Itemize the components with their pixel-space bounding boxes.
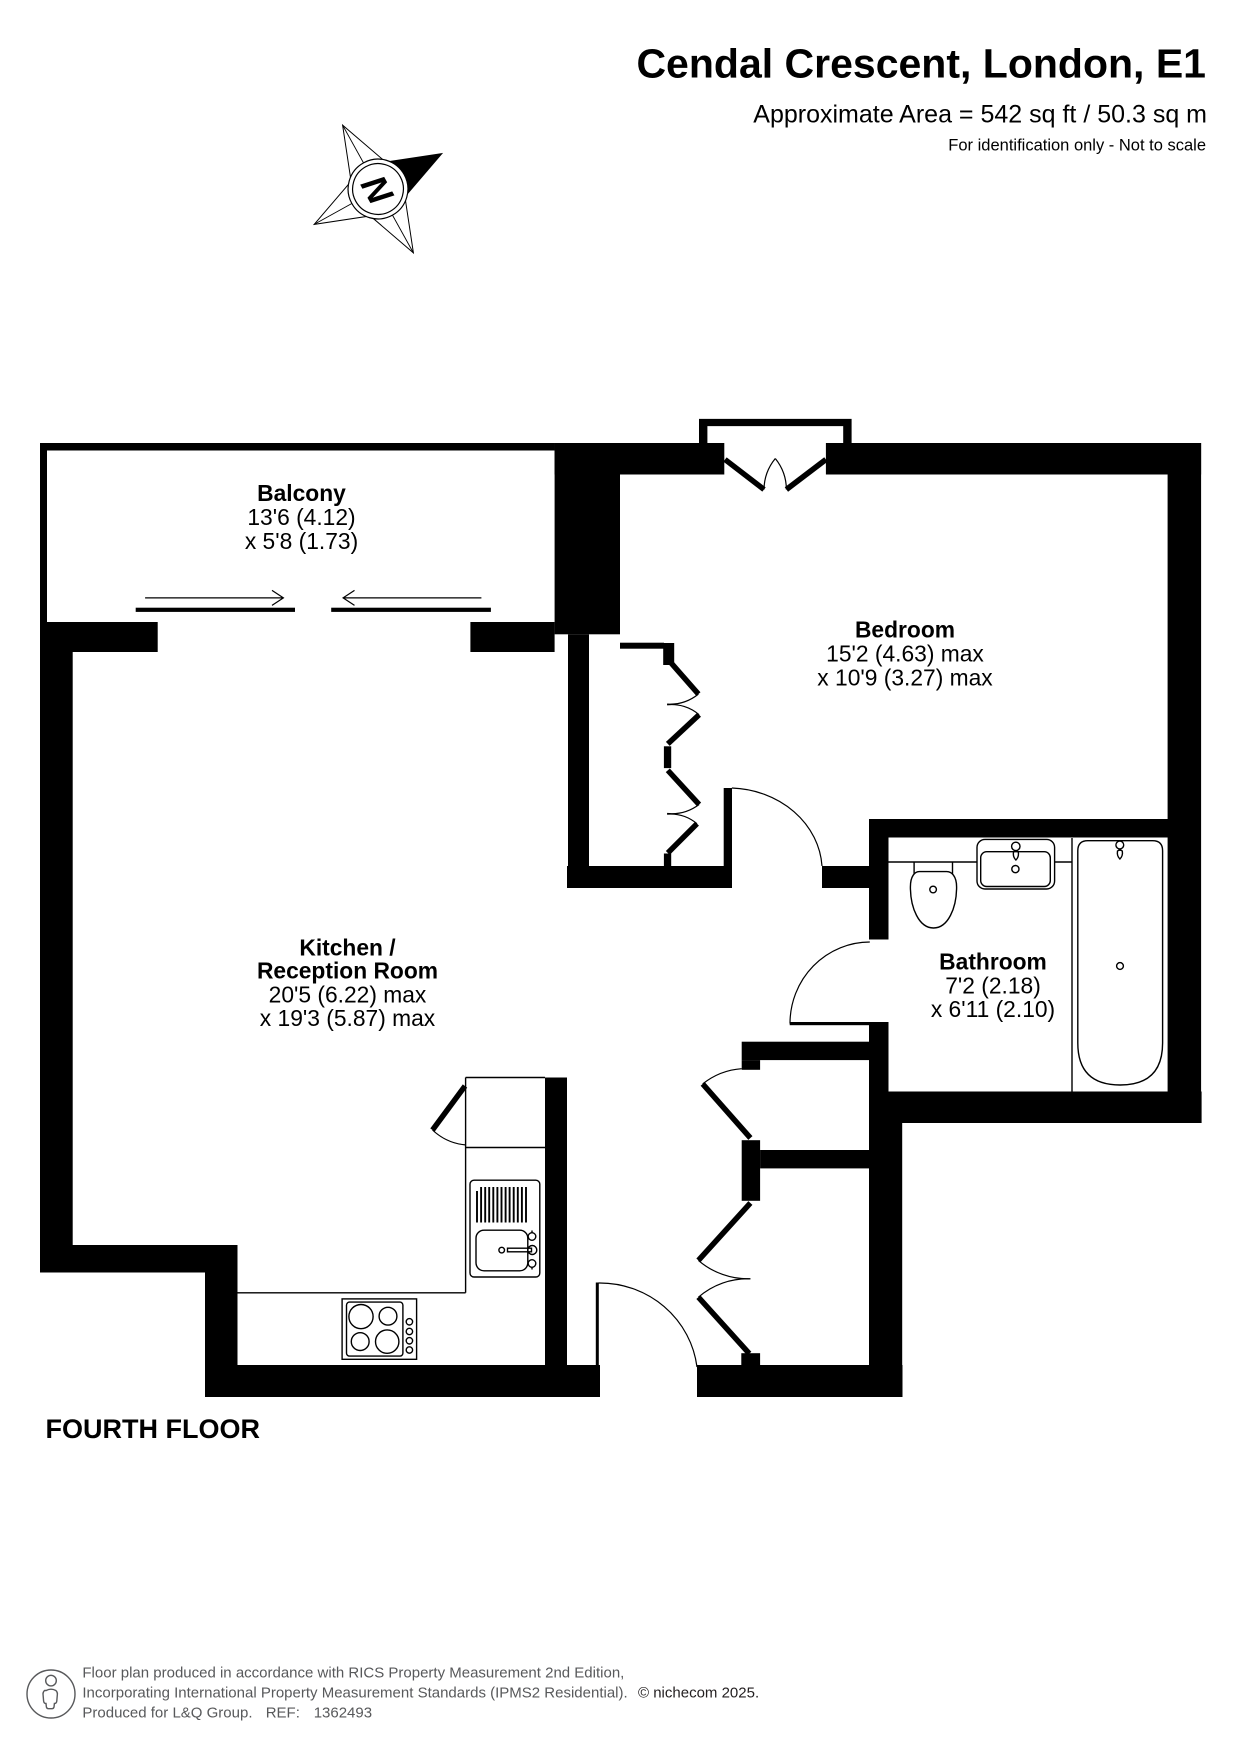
svg-text:x 5'8 (1.73): x 5'8 (1.73) (245, 528, 358, 554)
svg-text:Approximate Area = 542 sq ft /: Approximate Area = 542 sq ft / 50.3 sq m (753, 101, 1207, 129)
svg-text:x 6'11 (2.10): x 6'11 (2.10) (931, 996, 1055, 1022)
svg-text:Reception Room: Reception Room (257, 957, 438, 983)
svg-text:Bedroom: Bedroom (855, 617, 955, 643)
svg-text:Floor plan produced in accorda: Floor plan produced in accordance with R… (82, 1665, 624, 1682)
svg-text:7'2 (2.18): 7'2 (2.18) (945, 972, 1041, 998)
svg-text:Bathroom: Bathroom (939, 949, 1047, 975)
svg-text:For identification only - Not: For identification only - Not to scale (948, 137, 1206, 155)
svg-text:20'5 (6.22) max: 20'5 (6.22) max (269, 982, 427, 1008)
svg-text:FOURTH FLOOR: FOURTH FLOOR (46, 1414, 260, 1444)
svg-text:15'2 (4.63) max: 15'2 (4.63) max (826, 641, 984, 667)
svg-text:REF:: REF: (266, 1705, 300, 1722)
svg-text:© nichecom 2025.: © nichecom 2025. (638, 1685, 759, 1702)
svg-text:13'6 (4.12): 13'6 (4.12) (247, 504, 355, 530)
svg-text:Cendal Crescent, London, E1: Cendal Crescent, London, E1 (636, 41, 1206, 87)
svg-text:x 19'3 (5.87) max: x 19'3 (5.87) max (260, 1005, 436, 1031)
svg-text:Balcony: Balcony (257, 480, 346, 506)
svg-text:Incorporating International Pr: Incorporating International Property Mea… (82, 1685, 627, 1702)
svg-text:Produced for L&Q Group.: Produced for L&Q Group. (82, 1705, 252, 1722)
svg-text:x 10'9 (3.27) max: x 10'9 (3.27) max (817, 665, 993, 691)
svg-text:1362493: 1362493 (314, 1705, 372, 1722)
